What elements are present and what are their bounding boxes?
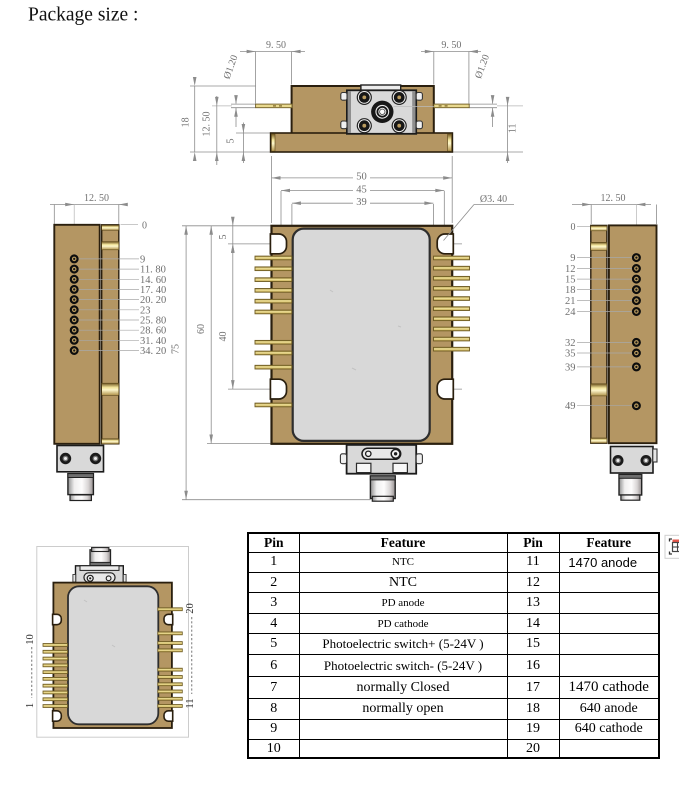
svg-text:39: 39 <box>565 362 576 373</box>
svg-text:9: 9 <box>570 253 575 264</box>
svg-text:35: 35 <box>565 349 576 360</box>
svg-text:10: 10 <box>25 634 36 645</box>
svg-text:11: 11 <box>185 698 196 708</box>
svg-text:21: 21 <box>565 296 576 307</box>
svg-text:1: 1 <box>25 703 36 708</box>
svg-text:18: 18 <box>565 285 576 296</box>
svg-text:12: 12 <box>565 264 576 275</box>
svg-text:45: 45 <box>356 185 367 196</box>
svg-text:60: 60 <box>196 324 207 334</box>
svg-text:20: 20 <box>185 603 196 614</box>
svg-text:0: 0 <box>571 222 576 233</box>
svg-text:39: 39 <box>356 197 367 208</box>
svg-text:11: 11 <box>508 123 519 133</box>
svg-text:75: 75 <box>171 344 182 354</box>
svg-text:15: 15 <box>565 275 576 286</box>
svg-text:5: 5 <box>226 139 237 144</box>
svg-text:0: 0 <box>142 221 147 232</box>
svg-text:Package size :: Package size : <box>28 5 138 26</box>
svg-text:18: 18 <box>180 117 191 127</box>
svg-text:9. 50: 9. 50 <box>441 40 461 51</box>
svg-text:34. 20: 34. 20 <box>140 346 166 357</box>
svg-text:50: 50 <box>356 172 367 183</box>
svg-text:12. 50: 12. 50 <box>202 112 213 137</box>
svg-text:12. 50: 12. 50 <box>84 193 109 204</box>
svg-text:9. 50: 9. 50 <box>266 40 286 51</box>
svg-text:49: 49 <box>565 401 576 412</box>
svg-text:12. 50: 12. 50 <box>601 193 626 204</box>
svg-text:5: 5 <box>218 235 229 240</box>
svg-text:Ø3. 40: Ø3. 40 <box>480 194 507 205</box>
svg-text:24: 24 <box>565 307 576 318</box>
svg-text:40: 40 <box>218 332 229 342</box>
svg-text:32: 32 <box>565 338 576 349</box>
